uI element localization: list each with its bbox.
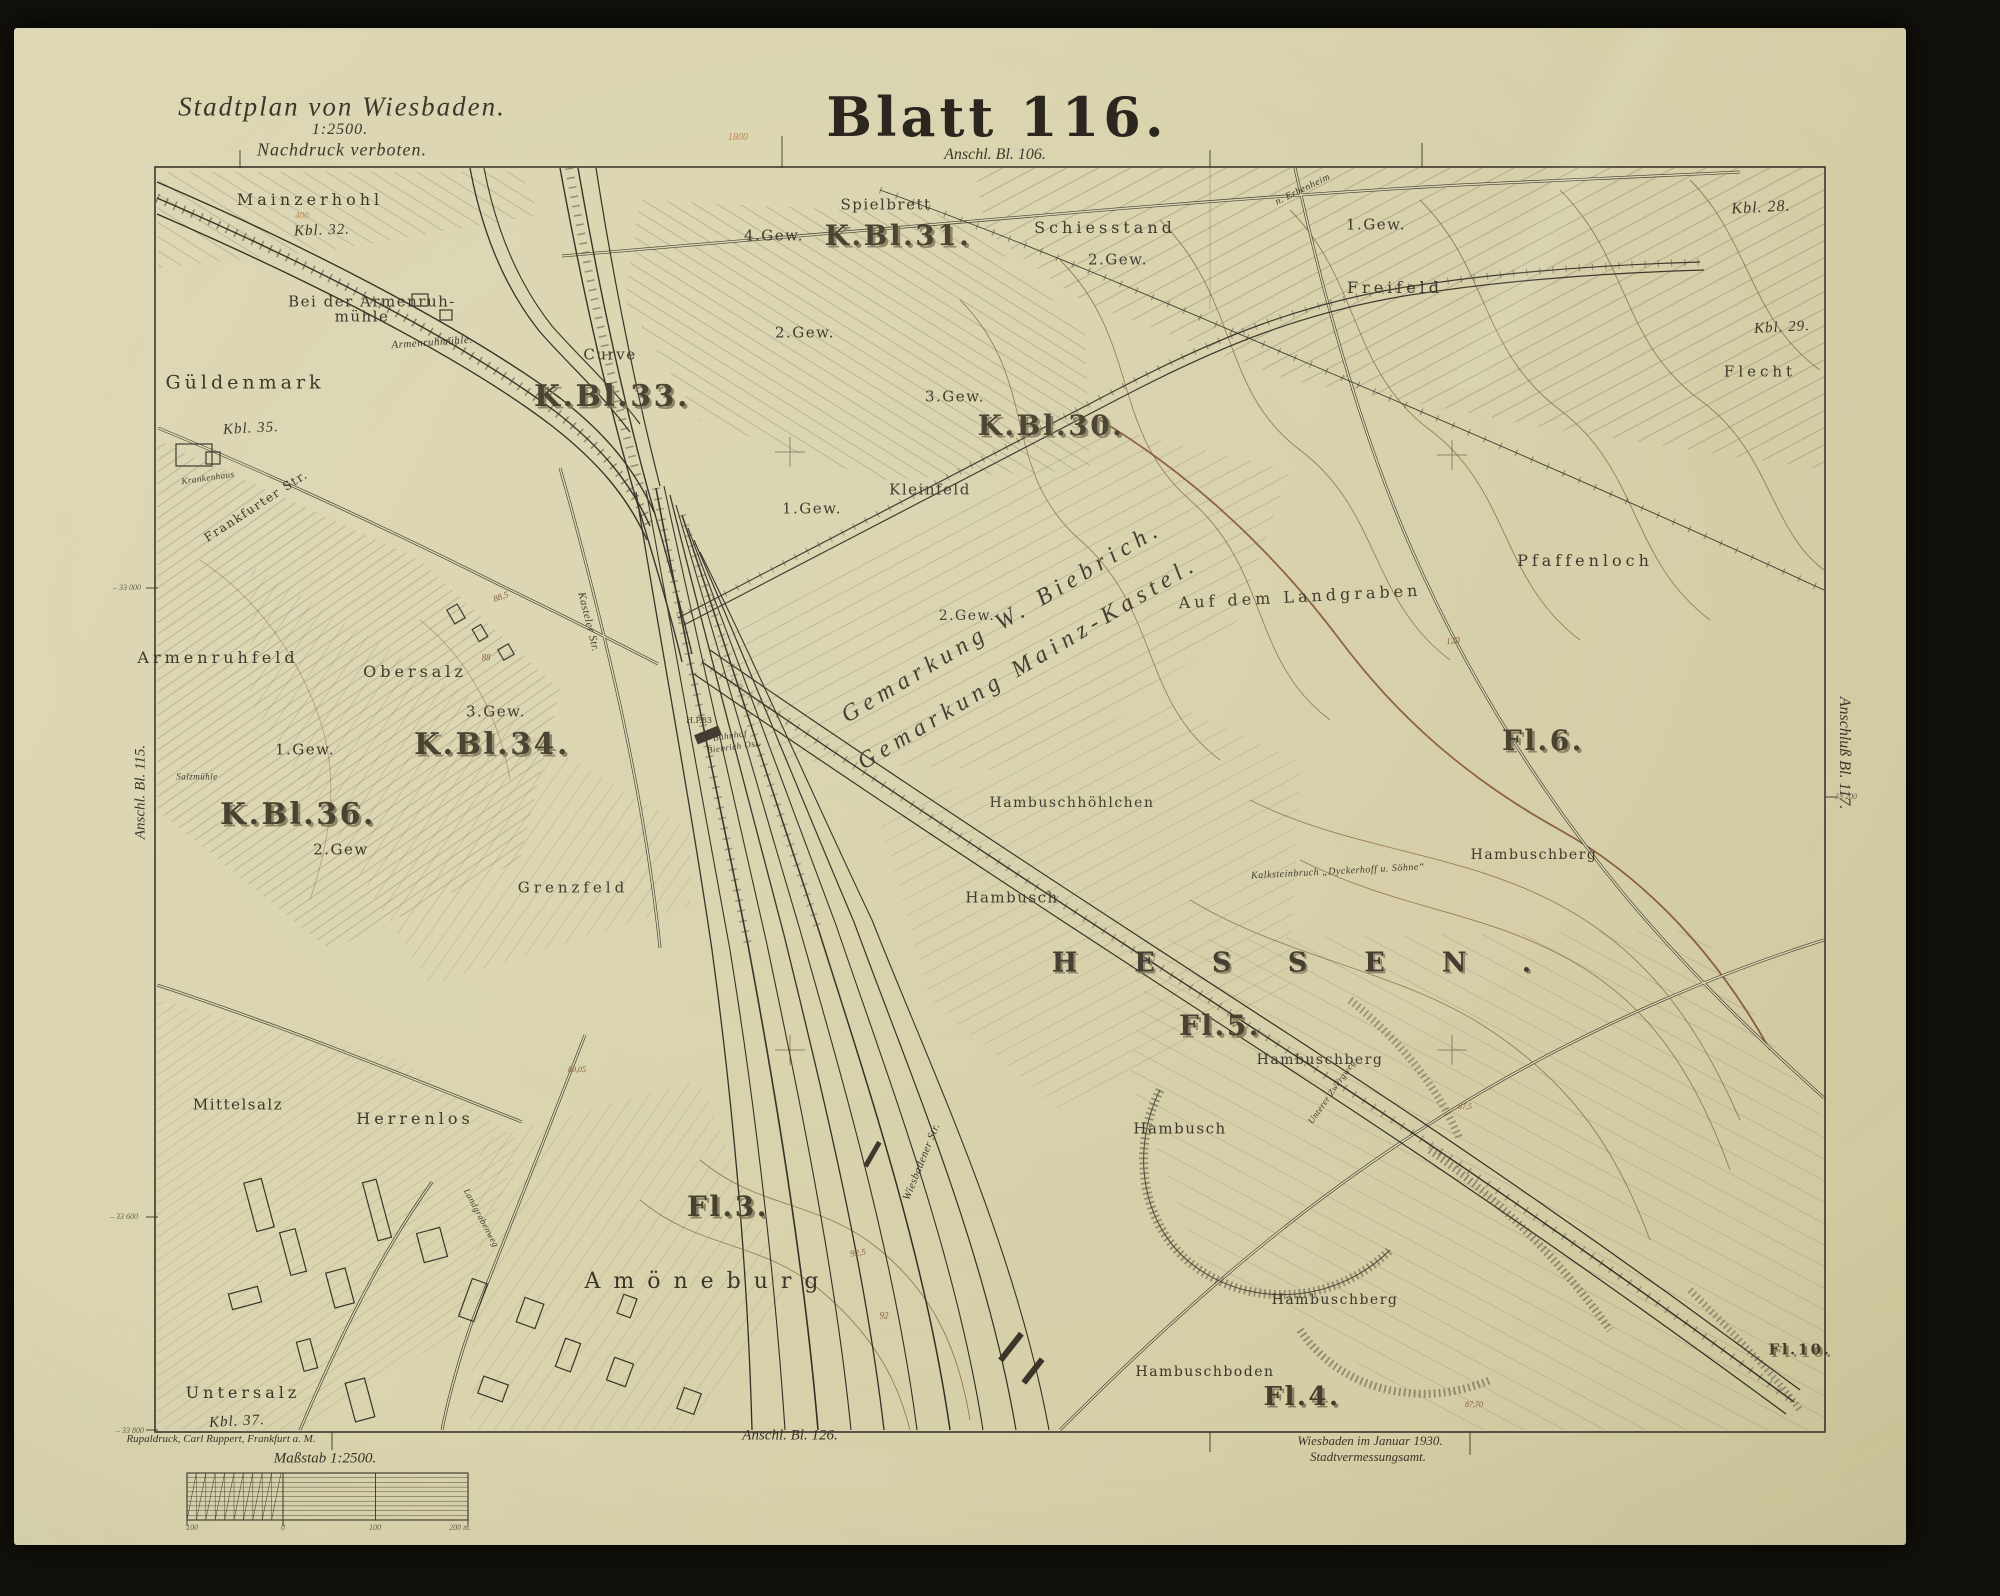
map-label-k-bl-33: K.Bl.33.: [534, 382, 690, 412]
map-label-k-bl-36: K.Bl.36.: [220, 800, 376, 830]
sheet-title: Blatt 116.: [826, 85, 1167, 149]
map-label-k-bl-31: K.Bl.31.: [825, 222, 972, 250]
map-label-pfaffenloch: Pfaffenloch: [1517, 553, 1653, 569]
map-label-fl-5: Fl.5.: [1179, 1012, 1261, 1040]
map-label-kbl-28: Kbl. 28.: [1731, 198, 1791, 217]
map-label-88: 88: [482, 654, 491, 663]
map-label-mühle: mühle: [335, 310, 390, 325]
map-label-schiesstand: Schiesstand: [1034, 220, 1176, 236]
map-label-89-05: 89,05: [568, 1066, 586, 1074]
map-label-92: 92: [880, 1312, 889, 1321]
map-label-fl-6: Fl.6.: [1502, 727, 1584, 755]
map-label-fl-3: Fl.3.: [687, 1193, 769, 1221]
map-label-1800: 1800: [728, 133, 748, 143]
map-label-hambuschberg: Hambuschberg: [1272, 1293, 1399, 1307]
map-label-armenruhfeld: Armenruhfeld: [137, 650, 298, 666]
map-label-güldenmark: Güldenmark: [165, 374, 324, 393]
scale-caption: Maßstab 1:2500.: [274, 1451, 377, 1468]
plan-scale: 1:2500.: [312, 121, 368, 139]
map-label-flecht: Flecht: [1724, 365, 1796, 380]
map-label-salzmühle: Salzmühle: [176, 773, 218, 782]
map-label-1-gew: 1.Gew.: [275, 743, 335, 758]
map-label-curve: Curve: [583, 348, 636, 363]
map-label-2-gew: 2.Gew.: [775, 326, 835, 341]
map-label-hambusch: Hambusch: [1133, 1122, 1226, 1137]
map-label-hambuschboden: Hambuschboden: [1135, 1365, 1274, 1379]
map-label-1-gew: 1.Gew.: [782, 502, 842, 517]
plan-note: Nachdruck verboten.: [257, 140, 427, 161]
map-label-400: 400: [295, 212, 309, 221]
map-label-freifeld: Freifeld: [1347, 280, 1443, 296]
map-label-1-gew: 1.Gew.: [1346, 218, 1406, 233]
map-label-k-bl-30: K.Bl.30.: [978, 412, 1125, 440]
map-label-2-gew: 2.Gew.: [1088, 253, 1148, 268]
map-label-kbl-37: Kbl. 37.: [209, 1413, 266, 1431]
map-label-3-gew: 3.Gew.: [466, 705, 526, 720]
map-label-hessen: HESSEN.: [1052, 950, 1588, 977]
map-label-33-200: – 33 200: [1829, 793, 1857, 801]
map-label-amöneburg: Amöneburg: [584, 1271, 831, 1293]
printer-imprint: Rupaldruck, Carl Ruppert, Frankfurt a. M…: [126, 1433, 315, 1445]
map-label-hambuschberg: Hambuschberg: [1471, 848, 1598, 862]
map-label-spielbrett: Spielbrett: [840, 198, 931, 213]
adjoin-label-bottom: Anschl. Bl. 126.: [742, 1428, 837, 1445]
map-label-h-p-83: H.P.83: [686, 717, 712, 725]
map-label-33-000: – 33 000: [113, 584, 141, 592]
map-label-kbl-32: Kbl. 32.: [294, 223, 350, 240]
map-label-mittelsalz: Mittelsalz: [193, 1098, 283, 1113]
map-label-untersalz: Untersalz: [186, 1385, 301, 1401]
map-label-herrenlos: Herrenlos: [356, 1111, 473, 1127]
map-label-fl-10: Fl.10.: [1769, 1343, 1832, 1358]
photo-background: Stadtplan von Wiesbaden. 1:2500. Nachdru…: [0, 0, 2000, 1596]
map-label-0: 0: [281, 1524, 285, 1532]
adjoin-label-top: Anschl. Bl. 106.: [944, 146, 1046, 164]
map-label-mainzerhohl: Mainzerhohl: [237, 192, 383, 208]
map-label-2-gew: 2.Gew: [313, 843, 369, 858]
authority-line: Stadtvermessungsamt.: [1310, 1449, 1426, 1465]
map-label-kbl-29: Kbl. 29.: [1754, 319, 1811, 337]
map-label-kbl-35: Kbl. 35.: [223, 420, 280, 438]
map-label-87-5: 87,5: [1458, 1103, 1472, 1111]
map-label-87-70: 87,70: [1465, 1401, 1483, 1409]
map-label-4-gew: 4.Gew.: [744, 229, 804, 244]
map-label-grenzfeld: Grenzfeld: [518, 881, 628, 896]
map-label-hambusch: Hambusch: [965, 891, 1058, 906]
map-label-100: 100: [369, 1524, 381, 1532]
plan-title: Stadtplan von Wiesbaden.: [178, 92, 506, 123]
scale-bar: [187, 1473, 468, 1526]
map-label-obersalz: Obersalz: [363, 664, 467, 680]
map-label-hambuschberg: Hambuschberg: [1257, 1053, 1384, 1067]
map-label-fl-4: Fl.4.: [1263, 1384, 1340, 1410]
map-label-33-600: – 33 600: [110, 1213, 138, 1221]
map-label-3-gew: 3.Gew.: [925, 390, 985, 405]
map-label-hambuschhöhlchen: Hambuschhöhlchen: [990, 796, 1155, 810]
map-label-200-m: 200 m.: [449, 1524, 471, 1532]
date-line: Wiesbaden im Januar 1930.: [1297, 1433, 1442, 1449]
map-label-33-800: – 33 800: [116, 1427, 144, 1435]
map-label-120: 120: [1446, 636, 1460, 646]
adjoin-label-left: Anschl. Bl. 115.: [133, 745, 150, 839]
map-label-kleinfeld: Kleinfeld: [889, 483, 971, 498]
map-label-k-bl-34: K.Bl.34.: [414, 730, 570, 760]
map-label-100: 100: [186, 1524, 198, 1532]
